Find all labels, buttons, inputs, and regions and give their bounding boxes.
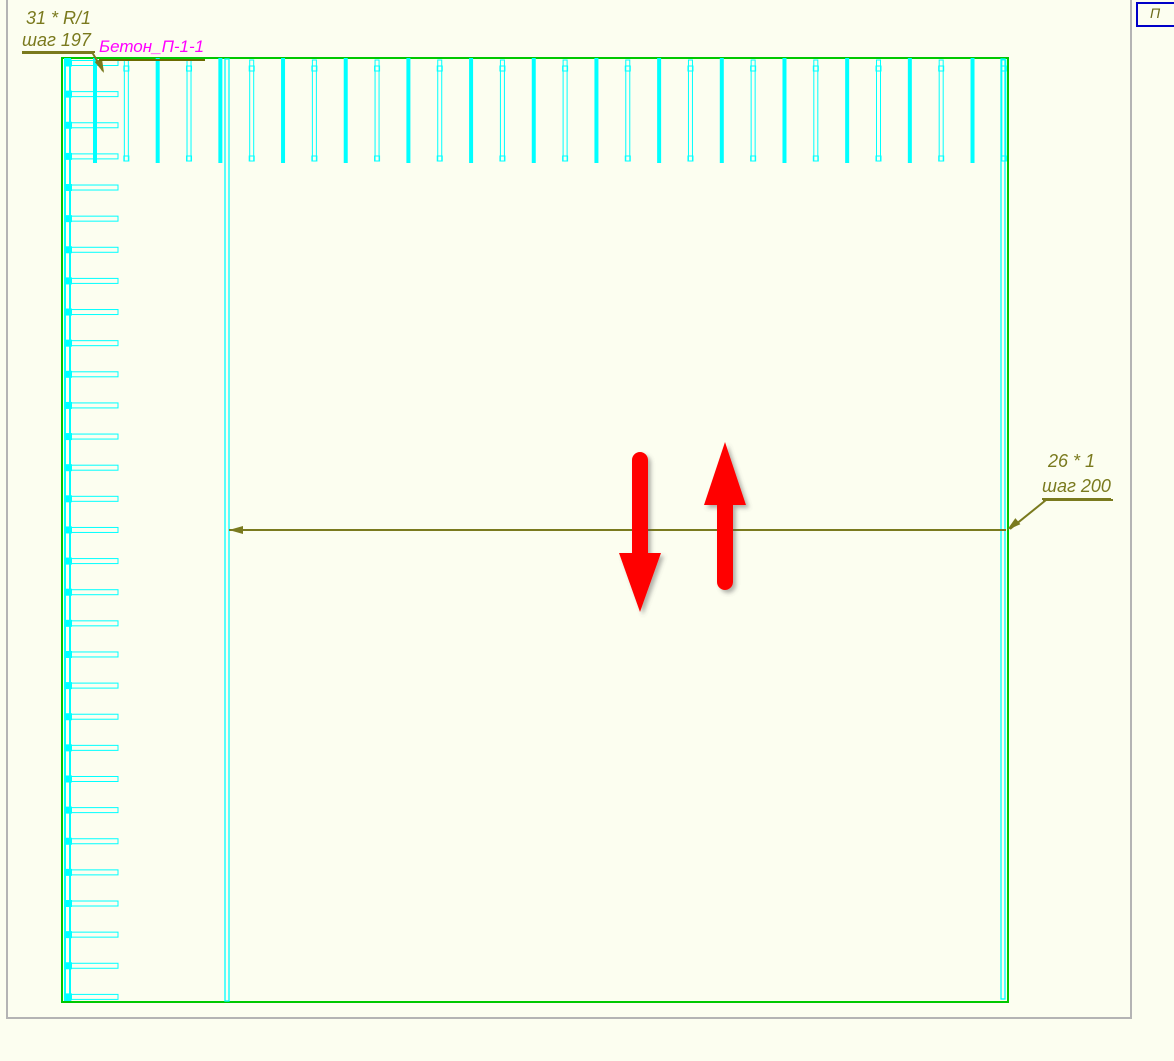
rebar-left-tick[interactable]: [66, 92, 118, 97]
rebar-knob: [65, 215, 72, 222]
rebar-knob: [65, 900, 72, 907]
rebar-top-tick[interactable]: [751, 60, 755, 161]
rebar-long-bar-0[interactable]: [225, 59, 229, 1001]
rebar-left-tick[interactable]: [66, 745, 118, 750]
rebar-knob: [65, 122, 72, 129]
rebar-left-tick[interactable]: [66, 403, 118, 408]
rebar-left-tick[interactable]: [66, 434, 118, 439]
rebar-left-tick[interactable]: [66, 683, 118, 688]
rebar-knob: [65, 620, 72, 627]
rebar-left-tick[interactable]: [66, 61, 118, 66]
rebar-top-tick[interactable]: [626, 60, 630, 161]
rebar-knob: [65, 682, 72, 689]
rebar-knob: [65, 246, 72, 253]
rebar-knob: [65, 433, 72, 440]
rebar-count-label-left[interactable]: 31 * R/1: [26, 8, 91, 29]
rebar-knob: [65, 931, 72, 938]
concrete-material-label[interactable]: Бетон_П-1-1: [99, 36, 205, 61]
dimension-arrow-left: [229, 526, 243, 534]
rebar-left-tick[interactable]: [66, 621, 118, 626]
rebar-knob: [65, 277, 72, 284]
rebar-top-tick[interactable]: [438, 60, 442, 161]
rebar-knob: [65, 744, 72, 751]
rebar-knob: [65, 402, 72, 409]
label-leader: [1010, 500, 1046, 529]
rebar-top-tick[interactable]: [563, 60, 567, 161]
rebar-knob: [65, 807, 72, 814]
rebar-top-tick[interactable]: [877, 60, 881, 161]
rebar-count-label-right[interactable]: 26 * 1: [1048, 451, 1095, 472]
rebar-left-tick[interactable]: [66, 559, 118, 564]
red-arrow-down[interactable]: [619, 452, 661, 612]
rebar-knob: [65, 558, 72, 565]
rebar-knob: [65, 309, 72, 316]
rebar-knob: [65, 526, 72, 533]
rebar-top-tick[interactable]: [375, 60, 379, 161]
rebar-top-tick[interactable]: [312, 60, 316, 161]
rebar-knob: [65, 589, 72, 596]
rebar-knob: [65, 651, 72, 658]
rebar-top-tick[interactable]: [814, 60, 818, 161]
rebar-top-tick[interactable]: [124, 60, 128, 161]
rebar-left-tick[interactable]: [66, 776, 118, 781]
rebar-knob: [65, 993, 72, 1000]
rebar-left-tick[interactable]: [66, 839, 118, 844]
rebar-left-tick[interactable]: [66, 527, 118, 532]
rebar-knob: [65, 153, 72, 160]
rebar-knob: [65, 713, 72, 720]
rebar-top-tick[interactable]: [500, 60, 504, 161]
rebar-left-tick[interactable]: [66, 123, 118, 128]
rebar-left-tick[interactable]: [66, 932, 118, 937]
rebar-left-tick[interactable]: [66, 590, 118, 595]
rebar-knob: [65, 60, 72, 67]
rebar-knob: [65, 371, 72, 378]
dimension-arrow-right: [1004, 518, 1020, 533]
rebar-left-tick[interactable]: [66, 994, 118, 999]
rebar-knob: [65, 962, 72, 969]
rebar-knob: [65, 869, 72, 876]
cad-canvas[interactable]: [0, 0, 1174, 1061]
red-arrows-group: [619, 442, 746, 612]
rebar-knob: [65, 184, 72, 191]
rebar-left-tick[interactable]: [66, 714, 118, 719]
rebar-knob: [65, 838, 72, 845]
rebar-left-tick[interactable]: [66, 341, 118, 346]
rebar-left-tick[interactable]: [66, 652, 118, 657]
rebar-left-tick[interactable]: [66, 372, 118, 377]
rebar-left-tick[interactable]: [66, 465, 118, 470]
rebar-left-tick[interactable]: [66, 963, 118, 968]
rebar-knob: [65, 464, 72, 471]
rebar-top-tick[interactable]: [688, 60, 692, 161]
cad-workspace: { "app": { "background_color": "#fcfef0"…: [0, 0, 1174, 1061]
rebar-knob: [65, 775, 72, 782]
rebar-left-tick[interactable]: [66, 901, 118, 906]
rebar-knob: [65, 340, 72, 347]
rebar-left-tick[interactable]: [66, 808, 118, 813]
rebar-top-tick[interactable]: [250, 60, 254, 161]
rebar-knob: [65, 495, 72, 502]
rebar-left-tick[interactable]: [66, 310, 118, 315]
rebar-left-tick[interactable]: [66, 496, 118, 501]
rebar-step-label-left[interactable]: шаг 197: [22, 30, 93, 54]
rebar-top-tick[interactable]: [939, 60, 943, 161]
rebar-left-tick[interactable]: [66, 154, 118, 159]
rebar-left-tick[interactable]: [66, 278, 118, 283]
rebar-left-tick[interactable]: [66, 185, 118, 190]
rebar-left-tick[interactable]: [66, 247, 118, 252]
rebar-top-tick[interactable]: [187, 60, 191, 161]
rebar-left-tick[interactable]: [66, 216, 118, 221]
red-arrow-up[interactable]: [704, 442, 746, 590]
rebar-left-tick[interactable]: [66, 870, 118, 875]
rebar-knob: [65, 91, 72, 98]
rebar-step-label-right[interactable]: шаг 200: [1042, 476, 1111, 500]
